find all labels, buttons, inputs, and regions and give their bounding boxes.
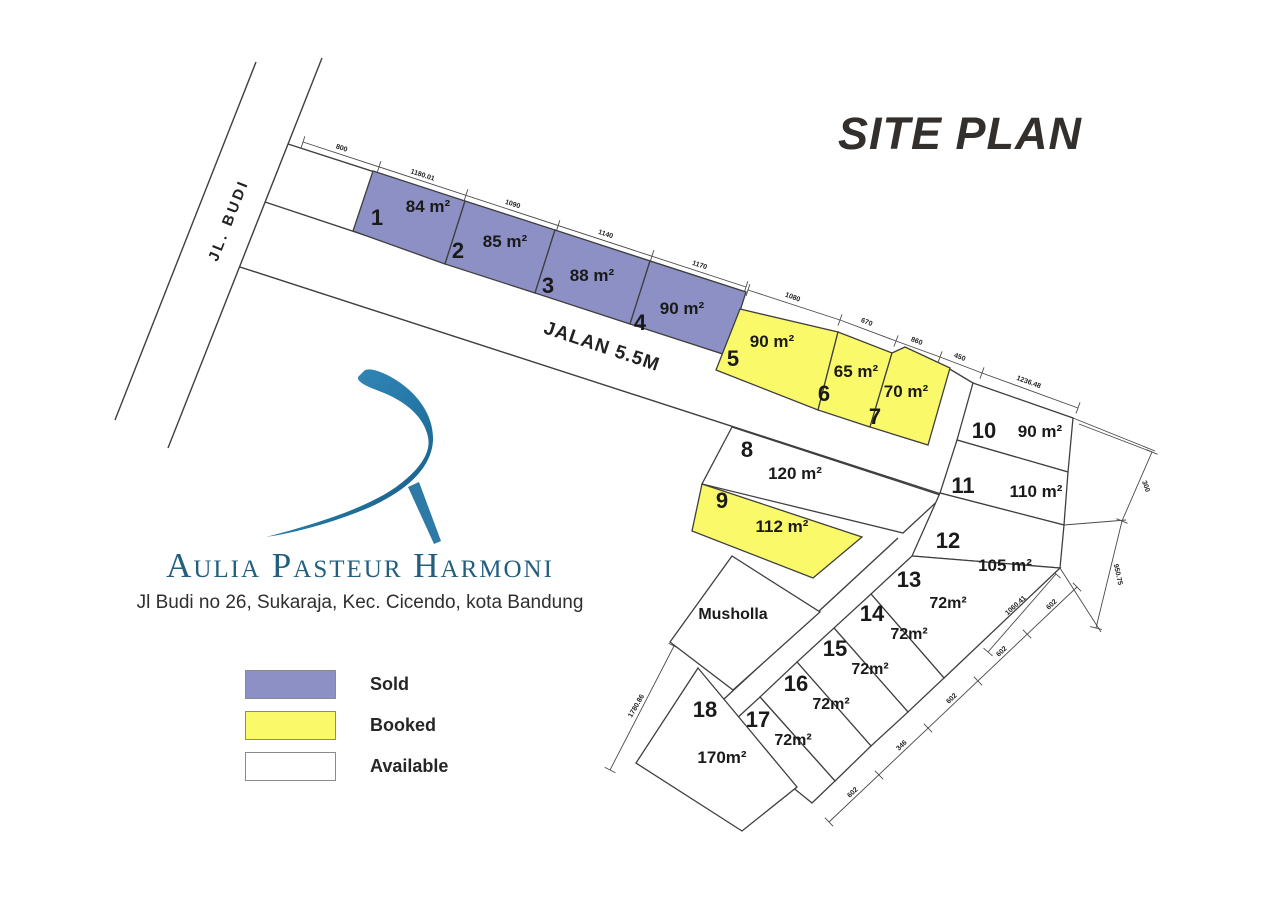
dimension-tick	[894, 335, 898, 346]
plot-area-8: 120 m²	[768, 464, 822, 483]
plot-number-1: 1	[371, 205, 383, 230]
plot-number-15: 15	[823, 636, 847, 661]
legend-label-sold: Sold	[370, 674, 409, 695]
site-plan-page: 184 m²285 m²388 m²490 m²590 m²665 m²770 …	[0, 0, 1280, 905]
plot-number-6: 6	[818, 381, 830, 406]
legend-swatch-sold	[245, 670, 336, 699]
dimension-label: 346	[895, 739, 908, 752]
plot-number-14: 14	[860, 601, 885, 626]
plot-area-11: 110 m²	[1010, 482, 1063, 501]
plot-number-16: 16	[784, 671, 808, 696]
plot-area-13: 72m²	[929, 595, 966, 612]
road-boundary-line	[948, 368, 973, 383]
legend-label-available: Available	[370, 756, 448, 777]
dimension-label: 860	[910, 336, 924, 347]
plot-area-17: 72m²	[774, 732, 811, 749]
plot-area-14: 72m²	[890, 626, 927, 643]
logo-ribbon-blade	[408, 482, 441, 544]
page-title: SITE PLAN	[838, 108, 1138, 160]
plot-area-10: 90 m²	[1018, 422, 1063, 441]
dimension-label: 670	[860, 317, 874, 328]
road-boundary-line	[115, 62, 256, 420]
plot-area-12: 105 m²	[978, 556, 1032, 575]
plot-number-13: 13	[897, 567, 921, 592]
dimension-line	[1079, 424, 1152, 628]
musholla-label: Musholla	[698, 606, 767, 623]
plot-number-5: 5	[727, 346, 739, 371]
road-boundary-line	[168, 58, 322, 448]
logo-ribbon	[266, 369, 441, 544]
plot-area-16: 72m²	[812, 696, 849, 713]
plot-number-4: 4	[634, 310, 647, 335]
dimension-label: 602	[1045, 598, 1058, 611]
dimension-line	[1064, 520, 1126, 525]
dimension-tick	[983, 648, 992, 656]
plot-number-2: 2	[452, 238, 464, 263]
legend-swatch-booked	[245, 711, 336, 740]
plot-area-7: 70 m²	[884, 382, 929, 401]
dimension-label: 602	[945, 692, 958, 705]
dimension-label: 1140	[597, 229, 614, 240]
plot-area-18: 170m²	[697, 748, 746, 767]
plot-polygon-1	[353, 171, 465, 264]
logo-ribbon-swoosh	[266, 369, 433, 537]
plot-number-12: 12	[936, 528, 960, 553]
brand-address: Jl Budi no 26, Sukaraja, Kec. Cicendo, k…	[20, 592, 700, 614]
plot-area-6: 65 m²	[834, 362, 879, 381]
plot-number-11: 11	[951, 473, 974, 498]
legend-row-sold: Sold	[245, 670, 448, 699]
brand-name: Aulia Pasteur Harmoni	[20, 546, 700, 586]
dimension-label: 300	[1140, 480, 1151, 493]
plot-area-9: 112 m²	[756, 517, 809, 536]
plot-number-18: 18	[693, 697, 717, 722]
legend-swatch-available	[245, 752, 336, 781]
dimension-line	[1060, 568, 1101, 632]
legend-row-booked: Booked	[245, 711, 448, 740]
dimension-label: 602	[995, 645, 1008, 658]
dimension-label: 450	[953, 352, 967, 363]
dimension-tick	[1146, 450, 1157, 455]
plot-number-8: 8	[741, 437, 753, 462]
plot-area-1: 84 m²	[406, 197, 451, 216]
plot-area-3: 88 m²	[570, 266, 615, 285]
dimension-line	[1073, 418, 1155, 451]
plot-number-17: 17	[746, 707, 770, 732]
legend-label-booked: Booked	[370, 715, 436, 736]
legend: Sold Booked Available	[245, 670, 448, 793]
dimension-tick	[938, 351, 942, 362]
plot-area-2: 85 m²	[483, 232, 528, 251]
legend-row-available: Available	[245, 752, 448, 781]
plot-number-7: 7	[869, 404, 881, 429]
plot-area-15: 72m²	[851, 661, 888, 678]
plot-number-9: 9	[716, 488, 728, 513]
plot-area-4: 90 m²	[660, 299, 705, 318]
plot-number-10: 10	[972, 418, 996, 443]
dimension-tick	[605, 767, 616, 772]
dimension-label: 800	[335, 143, 348, 153]
dimension-label: 1236.48	[1015, 375, 1041, 390]
dimension-tick	[980, 367, 984, 378]
plot-area-5: 90 m²	[750, 332, 795, 351]
dimension-label: 1080	[784, 292, 801, 304]
dimension-label: 602	[846, 786, 859, 799]
dimension-label: 950.75	[1112, 563, 1124, 586]
plot-number-3: 3	[542, 273, 554, 298]
dimension-tick	[1076, 402, 1080, 413]
dimension-label: 1180.01	[410, 168, 436, 182]
